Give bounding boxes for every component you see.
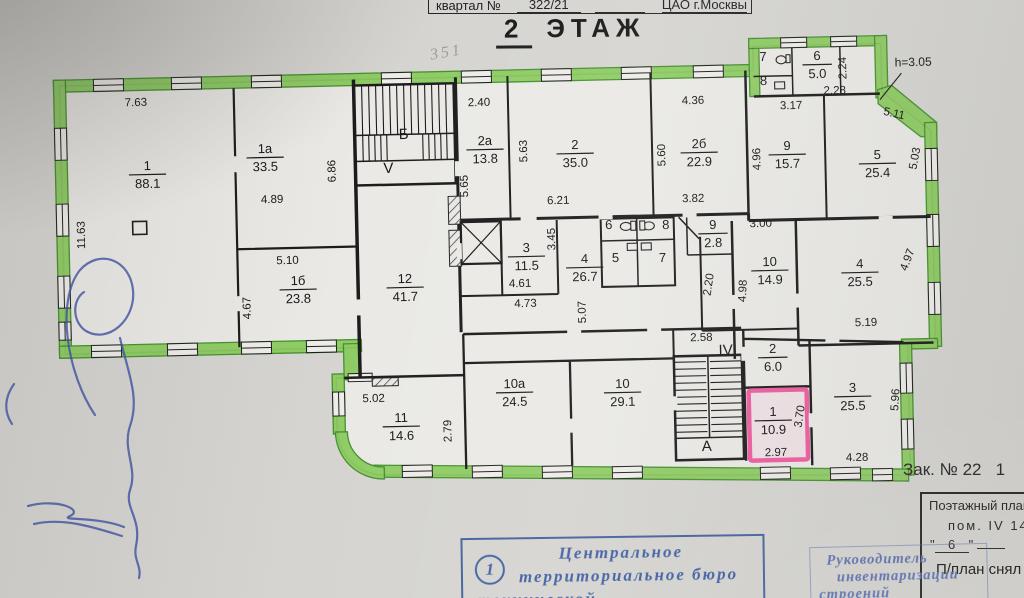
dimension-label: 11.63 [76,221,89,249]
room-number: 10а [503,376,526,392]
scanned-floor-plan-page: PRÆDIUM КОММЕРЧЕСКАЯ НЕДВИЖИМОСТЬ [0,0,1024,598]
window-midline [760,473,790,474]
section-number-red: IV [718,342,733,359]
room-area: 11.5 [514,258,539,274]
room-fraction-line [769,154,806,155]
room-area: 6.0 [764,359,782,374]
bureau-stamp: 1 Центральное территориальное бюро техни… [460,534,765,598]
dimension-label: 6.86 [326,160,339,183]
room-area: 23.8 [286,291,312,307]
quarter-value: 322/21 [517,0,581,13]
stair-tread [710,382,742,383]
room-fraction-line [802,64,831,65]
room-area: 29.1 [610,394,636,410]
room-number: 1а [258,141,274,156]
room-area: 15.7 [775,156,801,172]
dimension-label: 4.89 [261,194,284,207]
stair-tread [447,133,448,159]
dimension-label: 3.82 [682,193,705,206]
order-number: Зак. № 22 1 [903,460,1005,480]
window-midline [541,75,571,76]
dimension-label: 4.73 [514,298,537,311]
window-midline [338,392,339,416]
room-fraction-line [508,256,545,257]
dimension-label: 4.98 [737,279,750,302]
dimension-label: 5.19 [855,317,878,330]
window-midline [241,347,271,348]
window-midline [906,363,907,393]
room-area: 25.5 [840,398,866,414]
room-number: 4 [581,251,589,266]
dimension-label: 5.07 [576,301,589,324]
room-area: 22.9 [687,154,713,170]
dimension-label: 2.97 [765,447,788,460]
room-fraction-line [557,153,594,154]
room-area: 41.7 [393,289,419,305]
floor-word: ЭТАЖ [546,12,645,43]
room-area: 10.9 [761,422,787,438]
stair-tread [711,396,743,397]
inventory-stamp: Руководитель инвентаризации строений [809,543,989,598]
quarter-label: квартал № [436,0,501,13]
room-number: 12 [398,271,413,286]
room-number: 3 [522,240,530,255]
room-fraction-line [681,152,718,153]
stair-tread [675,411,707,412]
dimension-label: 2.28 [823,85,846,98]
staircase-letter: Б [399,126,409,143]
dimension-label: 5.63 [518,140,531,163]
stair-tread [423,134,424,160]
stair-tread [675,418,707,419]
room-number: 1 [769,404,777,419]
stair-tread [711,431,743,432]
room-area: 13.8 [472,151,498,167]
window-midline [621,73,651,74]
stair-tread [441,134,442,160]
room-fraction-line [859,163,896,164]
room-number: 1 [144,158,152,173]
floor-plan-canvas: 188.11а33.51б23.81241.72а13.8235.02б22.9… [0,0,1024,598]
window-midline [167,349,197,350]
stair-tread [675,397,707,398]
dimension-label: 5.02 [362,393,385,406]
dimension-label: 4.36 [682,95,705,108]
room-fraction-line [129,174,166,175]
dimension-label: 5.96 [889,388,902,411]
stair-tread [375,135,376,161]
district-value: ЦАО г.Москвы [662,0,747,13]
room-area: 14.6 [389,428,415,444]
stair-tread [710,361,742,362]
stair-tread [711,417,743,418]
stair-tread [674,362,706,363]
stair-tread [710,375,742,376]
room-fraction-line [834,396,871,397]
ceiling-height-note: h=3.05 [894,55,932,70]
stair-tread [711,403,743,404]
room-area: 25.4 [865,165,891,181]
dimension-label: 6.21 [547,195,570,208]
room-number: 2а [477,133,493,148]
stair-tread [674,376,706,377]
window-midline [251,81,281,82]
stair-tread [387,135,388,161]
blank-underline [595,0,645,13]
room-number: 5 [612,250,620,265]
form-title: Поэтажный план о [929,498,1024,513]
room-number: 8 [760,73,768,88]
form-room: пом. IV 14. [948,518,1024,533]
window-midline [831,41,857,42]
stair-tread [674,383,706,384]
room-fraction-line [496,392,533,393]
stair-tread [711,424,743,425]
room-fraction-line [383,426,420,427]
dimension-label: 4.67 [241,297,254,320]
room-area: 25.5 [847,274,873,290]
room-fraction-line [387,287,424,288]
room-fraction-line [755,420,792,421]
room-number: 2 [769,341,777,356]
room-number: 7 [759,49,767,64]
dimension-label: 2.58 [690,332,713,345]
stair-tread [674,369,706,370]
dimension-label: 4.28 [846,452,869,465]
room-fraction-line [841,272,878,273]
window-midline [693,71,723,72]
stair-tread [369,135,370,161]
dimension-label: 3.45 [546,228,559,251]
window-midline [612,472,642,473]
dimension-label: 3.17 [780,100,803,113]
stair-tread [675,425,707,426]
room-number: 10 [762,254,777,269]
door-opening [825,340,839,341]
stair-tread [675,404,707,405]
room-fraction-line [698,233,727,234]
section-number-red: V [383,160,393,177]
window-midline [830,473,860,474]
room-area: 33.5 [253,159,279,175]
page-title: 2ЭТАЖ [496,12,646,48]
window-midline [381,78,411,79]
room-number: 9 [709,217,717,232]
window-midline [907,419,908,449]
dimension-label: 2.79 [442,420,455,443]
dimension-label: 5.10 [276,255,299,268]
window-midline [306,346,336,347]
window-midline [92,351,122,352]
window-midline [402,471,432,472]
window-midline [171,83,201,84]
room-number: 10 [615,376,630,391]
room-area: 5.0 [808,66,826,81]
room-number: 6 [813,48,821,63]
room-fraction-line [751,270,788,271]
room-number: 8 [662,217,670,232]
window-midline [781,42,807,43]
stamp-badge: 1 [475,555,505,585]
window-midline [542,472,572,473]
room-fraction-line [247,157,284,158]
stair-tread [710,368,742,369]
dimension-label: 2.40 [468,97,491,110]
stair-tread [675,432,707,433]
room-area: 26.7 [572,269,598,285]
dimension-label: 4.96 [751,148,764,171]
stair-tread [675,390,707,391]
dimension-label: 2.24 [837,56,850,79]
stair-tread [435,134,436,160]
stair-tread [429,134,430,160]
stair-tread [381,135,382,161]
room-area: 88.1 [135,176,161,192]
dimension-label: 5.60 [656,144,669,167]
dimension-label: 7.63 [125,97,148,110]
window-midline [461,76,491,77]
room-fraction-line [566,267,603,268]
room-area: 24.5 [502,394,528,410]
stair-tread [711,389,743,390]
room-number: 7 [659,250,667,265]
dimension-label: 5.65 [459,175,472,198]
room-number: 2б [691,136,706,151]
room-number: 11 [394,410,408,425]
window-midline [93,85,123,86]
room-number: 1б [290,273,305,288]
room-area: 35.0 [563,155,589,171]
floor-number: 2 [496,13,533,48]
room-number: 6 [605,217,613,232]
stair-tread [711,410,743,411]
room-number: 9 [783,138,791,153]
room-number: 5 [873,147,881,162]
dimension-label: 4.61 [509,278,532,291]
room-area: 2.8 [704,235,722,250]
room-area: 14.9 [757,272,783,288]
room-fraction-line [280,289,317,290]
room-fraction-line [758,357,787,358]
room-number: 3 [849,380,857,395]
window-midline [472,471,502,472]
room-number: 4 [856,256,864,271]
staircase-letter: А [702,438,712,455]
room-number: 2 [571,137,579,152]
room-fraction-line [466,149,503,150]
stair-tread [363,135,364,161]
room-fraction-line [604,392,641,393]
dimension-label: 3.00 [749,218,772,231]
